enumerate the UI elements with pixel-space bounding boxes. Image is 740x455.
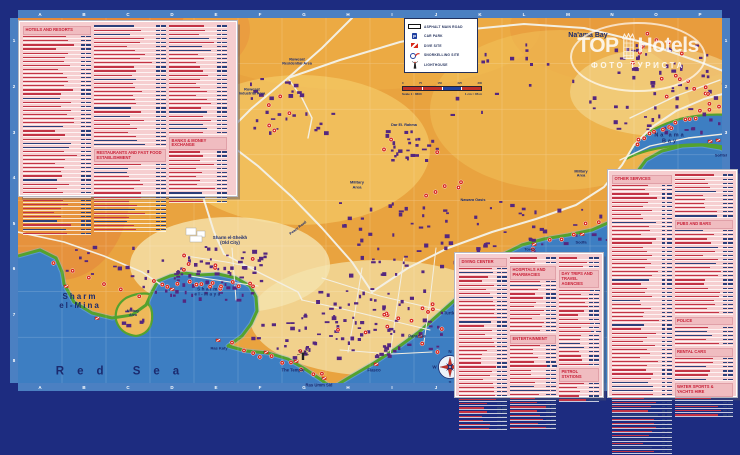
list-row [23,208,91,211]
list-row [675,398,734,401]
list-row [510,305,556,308]
building [706,54,708,57]
list-row [510,326,556,329]
hotel-marker [382,313,386,317]
building [428,321,432,323]
building [300,93,305,97]
banks-list [169,151,227,204]
building [226,286,230,289]
list-row [169,184,227,187]
hotel-marker [665,94,669,98]
building [132,247,135,250]
listings-col-2: RESTAURANTS AND FAST FOOD ESTABLISHMENT [94,25,166,192]
building [411,154,416,157]
hotel-marker [652,130,656,134]
list-row [94,37,166,40]
grid-number: 3 [10,109,18,155]
services-col-1: OTHER SERVICES [612,174,672,393]
building [384,347,389,350]
building [316,300,320,304]
building [182,283,185,287]
hotel-marker [430,302,434,306]
building [658,115,660,119]
list-row [169,171,227,174]
list-row [23,81,91,84]
list-row [23,122,91,125]
list-row [169,70,227,73]
building [493,245,497,247]
building [370,208,373,212]
list-row [612,230,672,233]
building [647,124,652,127]
list-row [559,359,599,362]
list-row [675,326,734,329]
list-row [510,402,556,405]
building [239,277,244,279]
list-row [23,228,91,231]
grid-letter: H [326,383,370,391]
list-row [94,225,166,228]
scale-tick: 0 [402,82,404,85]
grid-ruler-top: ABCDEFGHIJKLMNOP [18,10,722,18]
list-row [459,374,507,377]
list-row [169,196,227,199]
list-row [675,190,734,193]
building [147,270,149,273]
dive-site-flag-icon [532,243,536,246]
list-row [559,289,599,292]
list-row [612,234,672,237]
list-row [94,144,166,147]
grid-letter: D [150,383,194,391]
hotel-marker [433,190,437,194]
list-row [459,292,507,295]
hotel-marker [597,220,601,224]
grid-letter: J [414,383,458,391]
hotel-marker [661,127,665,131]
building [361,256,364,260]
list-row [675,203,734,206]
building [393,146,395,149]
list-row [459,378,507,381]
building [241,257,244,259]
building [534,210,536,214]
list-row [510,418,556,421]
hotel-marker [559,237,563,241]
building [289,94,294,98]
building [405,207,408,211]
list-row [459,423,507,426]
list-row [612,242,672,245]
dive-site-flag-icon [95,317,99,320]
list-row [169,188,227,191]
entertainment-list [510,345,556,431]
hotel-marker [320,372,324,376]
building [348,341,350,345]
building [672,87,674,89]
list-row [23,195,91,198]
building [389,328,393,331]
building [386,134,390,138]
building [393,350,396,353]
list-row [94,62,166,65]
list-row [23,77,91,80]
building [290,322,295,324]
building [653,92,656,95]
list-row [510,313,556,316]
building [278,113,282,116]
list-row [559,355,599,358]
building [75,249,78,251]
building [242,294,244,297]
building [529,238,533,241]
hotel-marker [443,184,447,188]
building [344,224,346,228]
list-row [23,93,91,96]
misc-list [169,25,227,136]
building [230,266,234,270]
scale-bar-segments [402,86,482,91]
building [398,149,402,153]
list-row [94,171,166,174]
diving-col-3: DAY TRIPS AND TRAVEL AGENCIES PETROL STA… [559,257,599,393]
scale-equivalence: 1 cm = 86 m [465,92,482,96]
list-row [23,142,91,145]
list-row [23,105,91,108]
building [522,208,526,211]
compass-letter: N [448,349,451,354]
building [423,289,426,293]
building [324,131,329,135]
grid-number: 5 [10,201,18,247]
list-row [559,330,599,333]
list-row [559,363,599,366]
building [143,286,145,288]
list-row [459,272,507,275]
hotel-marker [70,269,74,273]
building [706,70,709,73]
list-row [510,345,556,348]
grid-letter: J [414,10,458,18]
building [204,292,207,294]
building [263,253,267,255]
building [404,131,408,134]
building [599,215,602,219]
building [346,290,349,292]
scale-bar: 075150225300 Scale 1 : 8600 1 cm = 86 m [402,82,482,96]
list-row [510,301,556,304]
list-row [459,305,507,308]
building [419,227,423,229]
list-row [459,268,507,271]
building [564,242,569,245]
list-row [559,261,599,264]
list-row [94,45,166,48]
list-row [675,207,734,210]
list-row [169,99,227,102]
building [437,326,440,329]
list-row [459,337,507,340]
building [266,111,269,114]
list-row [612,357,672,360]
building [259,264,263,266]
building [525,57,528,61]
building [210,258,212,260]
list-row [612,414,672,417]
building [199,297,202,301]
building [226,255,229,257]
grid-letter: C [106,383,150,391]
list-row [459,329,507,332]
grid-letter: C [106,10,150,18]
building [200,260,203,262]
grid-letter: O [634,10,678,18]
building [181,273,184,275]
building [386,130,391,133]
list-row [23,183,91,186]
list-row [169,115,227,118]
pubs-list [675,230,734,316]
building [581,209,583,211]
building [317,334,321,336]
building [522,214,524,216]
hotels-list [23,36,91,237]
building [393,259,395,261]
list-row [459,345,507,348]
list-row [612,422,672,425]
building [243,251,246,253]
grid-number: 4 [10,155,18,201]
list-row [23,89,91,92]
building [445,220,448,223]
building [530,63,533,66]
list-row [612,344,672,347]
car-park-icon: P [408,33,421,39]
building [699,57,703,59]
building [372,259,375,261]
legend-item-road: ASPHALT MAIN ROAD [408,22,475,32]
hotel-marker [686,79,690,83]
building [79,257,82,260]
building [636,44,638,47]
building [191,294,193,297]
building [352,349,355,351]
list-row [169,50,227,53]
building [652,118,655,122]
section-title-banks: BANKS & MONEY EXCHANGE [169,137,227,150]
list-row [94,54,166,57]
list-row [23,199,91,202]
grid-letter: M [546,10,590,18]
list-row [675,267,734,270]
building [196,273,200,275]
list-row [675,238,734,241]
hotel-marker [640,45,644,49]
list-row [169,37,227,40]
list-row [459,300,507,303]
list-row [94,107,166,110]
hotel-marker [669,126,673,130]
hotel-marker [420,306,424,310]
hotel-marker [119,287,123,291]
list-row [612,418,672,421]
building [666,64,669,68]
hotel-marker [385,324,389,328]
grid-letter: G [282,383,326,391]
list-row [510,349,556,352]
list-row [169,123,227,126]
list-row [23,60,91,63]
list-row [612,209,672,212]
list-row [94,229,166,232]
building [510,204,515,207]
list-row [675,291,734,294]
hotel-marker [459,180,463,184]
section-title-hotels: HOTELS AND RESORTS [23,26,91,35]
grid-letter: B [62,383,106,391]
building [185,291,187,295]
list-row [459,411,507,414]
building [384,350,388,352]
building [415,154,419,157]
list-row [169,54,227,57]
hotel-marker [251,257,255,261]
building [113,266,117,268]
list-row [169,131,227,134]
building [410,297,414,300]
building [654,106,657,109]
list-row [559,322,599,325]
hotel-marker [396,316,400,320]
list-row [675,174,734,177]
grid-letter: I [370,383,414,391]
list-row [612,250,672,253]
list-row [675,366,734,369]
building [407,138,410,140]
hotel-marker [456,185,460,189]
building [215,272,220,275]
hotel-marker [194,282,198,286]
list-row [675,406,734,409]
services-col-2: PUBS AND BARS POLICE RENTAL CARS WATER S… [675,174,734,393]
building [331,113,335,115]
list-row [23,150,91,153]
building [481,61,485,64]
building [709,118,712,121]
building [525,49,528,52]
building [404,256,408,258]
building [259,93,264,96]
hotel-marker [642,136,646,140]
hotel-marker [213,263,217,267]
hotel-marker [219,284,223,288]
building [510,57,514,61]
building [215,248,218,251]
list-row [612,373,672,376]
building [707,75,710,78]
listings-col-1: HOTELS AND RESORTS [23,25,91,192]
hotel-marker [165,285,169,289]
list-row [510,398,556,401]
grid-letter: K [458,10,502,18]
building [298,329,300,332]
hotel-marker [717,104,721,108]
list-row [94,95,166,98]
section-title-water-sports: WATER SPORTS & YACHTS HIRE [675,383,734,396]
building [140,321,144,324]
list-row [94,216,166,219]
building [525,43,527,46]
building [252,250,257,254]
building [91,273,94,275]
building [474,216,477,219]
building [251,292,255,294]
building [327,293,330,297]
list-row [675,254,734,257]
hotel-marker [660,77,664,81]
list-row [459,419,507,422]
building [376,354,378,357]
hotel-marker [242,348,246,352]
list-row [94,58,166,61]
hotel-marker [382,147,386,151]
list-row [459,386,507,389]
list-row [23,154,91,157]
building [401,300,404,304]
list-row [94,74,166,77]
building [370,288,374,290]
list-row [675,182,734,185]
building [258,259,261,262]
list-row [23,126,91,129]
hotels-list-cont [94,25,166,148]
building [188,274,191,278]
list-row [612,217,672,220]
list-row [612,447,672,450]
building [415,138,417,140]
hotel-marker [548,238,552,242]
hotel-marker [531,247,535,251]
building [427,144,431,146]
building [423,206,426,209]
building [659,71,661,75]
day-trips-list [559,289,599,367]
list-row [169,163,227,166]
list-row [94,221,166,224]
list-row [559,383,599,386]
building [293,356,298,359]
hotel-marker [631,61,635,65]
building [205,262,210,264]
petrol-list [559,383,599,403]
section-title-petrol: PETROL STATIONS [559,368,599,381]
building [408,142,411,145]
snorkel-icon [408,52,421,59]
building [145,277,148,280]
building [341,337,344,340]
list-row [459,407,507,410]
list-row [559,318,599,321]
dive-site-flag-icon [294,360,298,363]
list-row [612,402,672,405]
hotel-marker [278,94,282,98]
building [406,150,409,152]
building [318,291,323,294]
building [348,303,350,305]
hotel-marker [186,262,190,266]
list-row [169,167,227,170]
building [403,262,405,265]
